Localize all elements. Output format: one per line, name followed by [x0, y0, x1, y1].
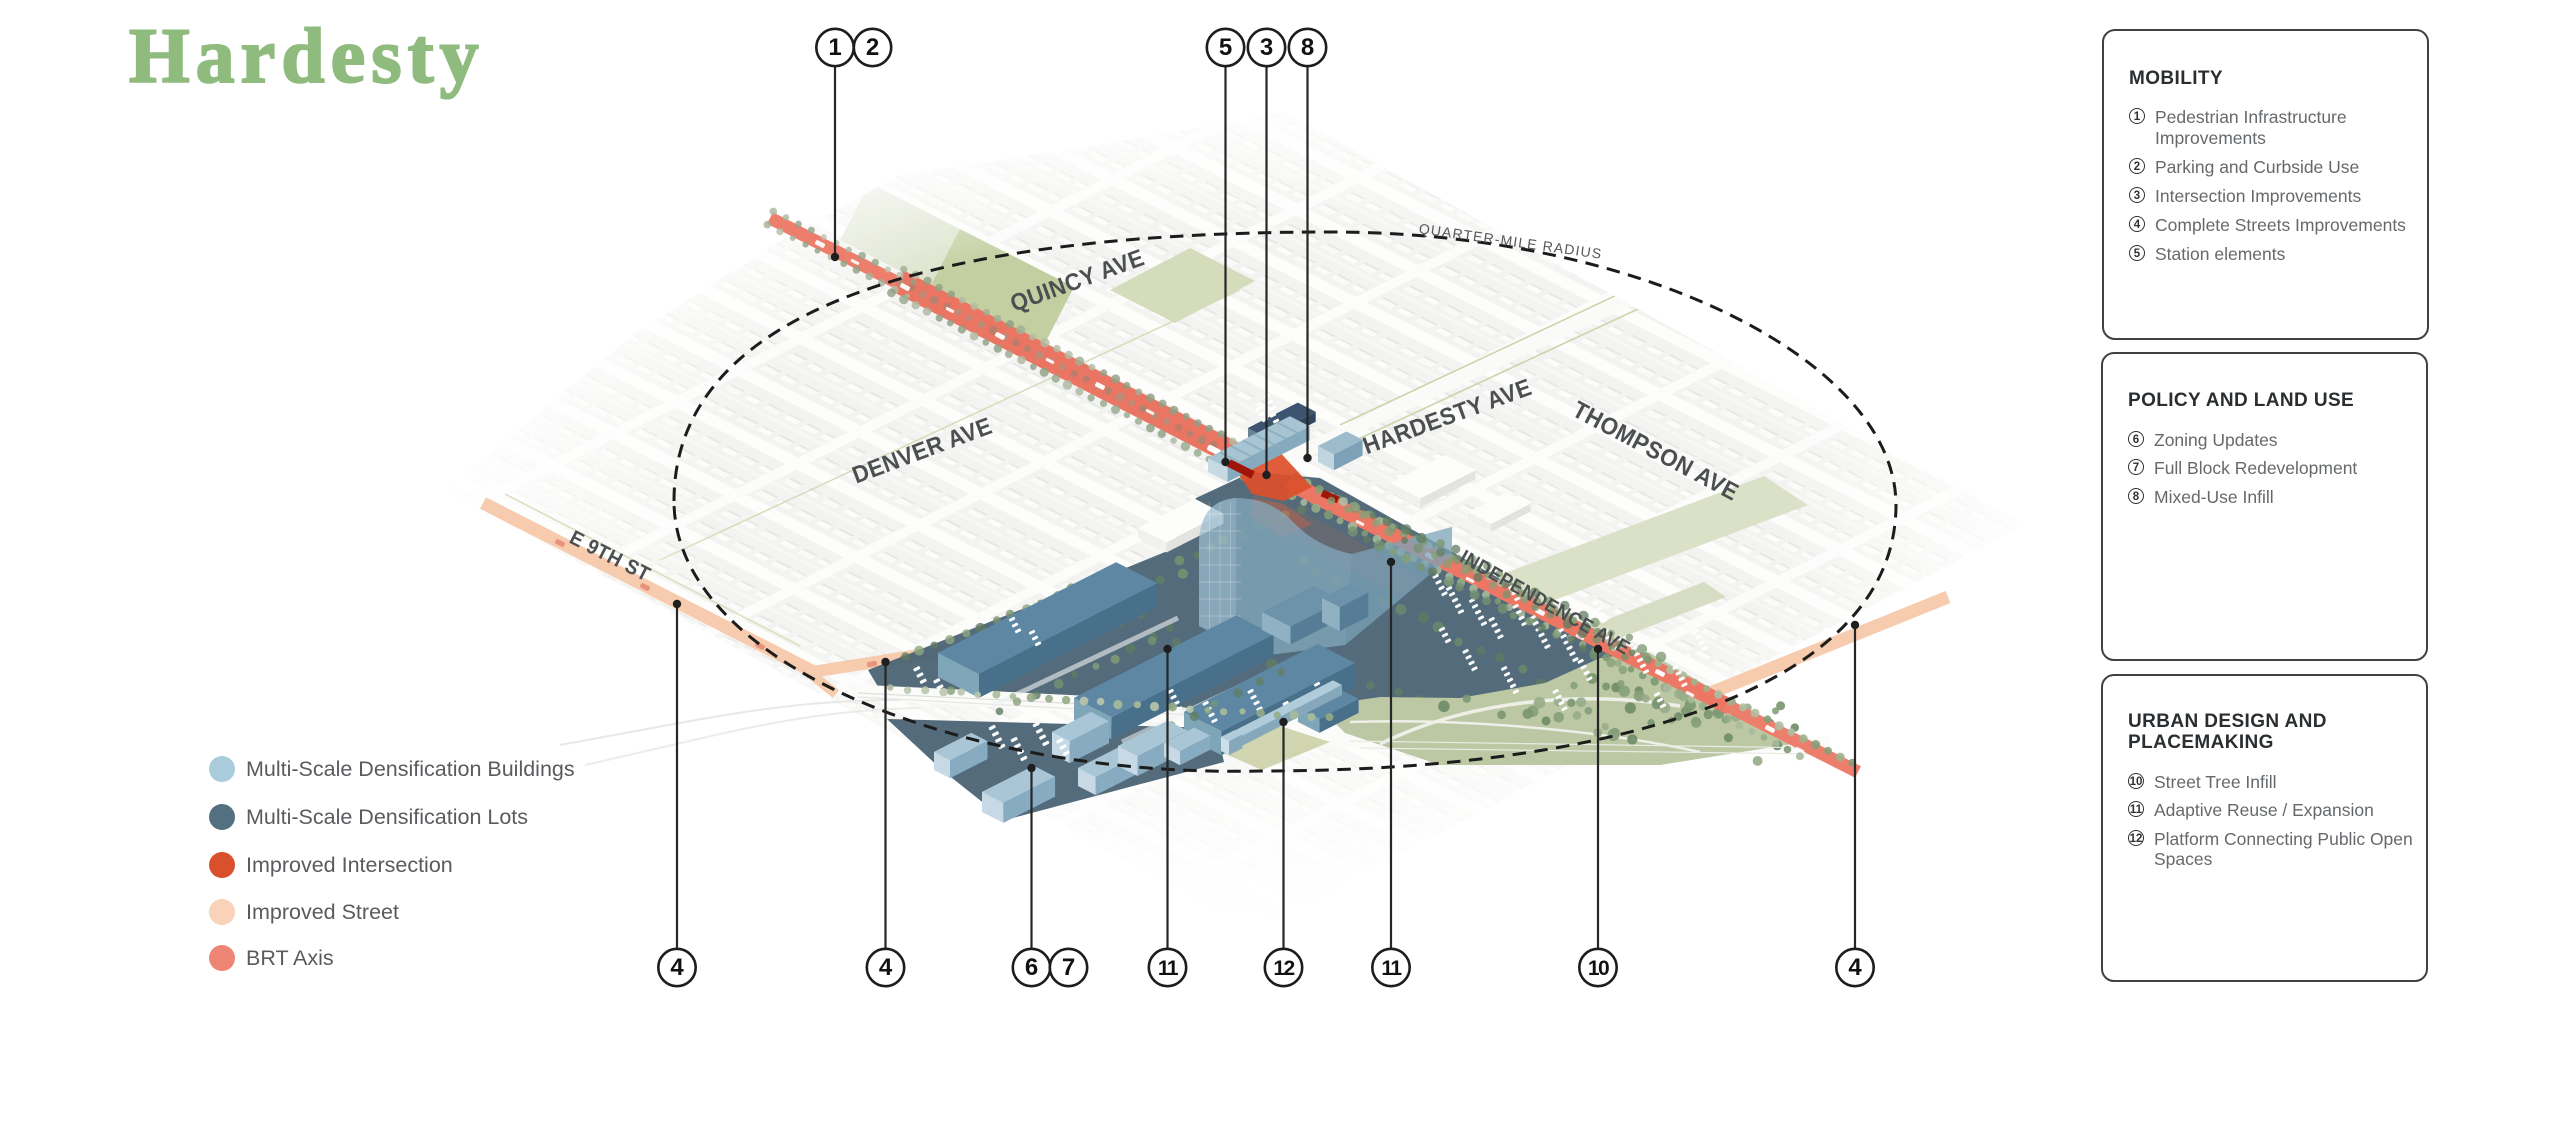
svg-text:4: 4	[879, 954, 893, 981]
svg-text:2: 2	[866, 34, 879, 61]
svg-text:8: 8	[1301, 34, 1314, 61]
svg-text:3: 3	[1260, 34, 1273, 61]
svg-text:7: 7	[1062, 954, 1075, 981]
svg-text:1: 1	[828, 34, 841, 61]
svg-text:11: 11	[1158, 957, 1179, 980]
svg-text:5: 5	[1219, 34, 1232, 61]
svg-text:4: 4	[1848, 954, 1862, 981]
svg-text:11: 11	[1381, 957, 1402, 980]
svg-text:6: 6	[1025, 954, 1038, 981]
svg-text:12: 12	[1273, 957, 1294, 980]
svg-text:10: 10	[1588, 957, 1609, 980]
